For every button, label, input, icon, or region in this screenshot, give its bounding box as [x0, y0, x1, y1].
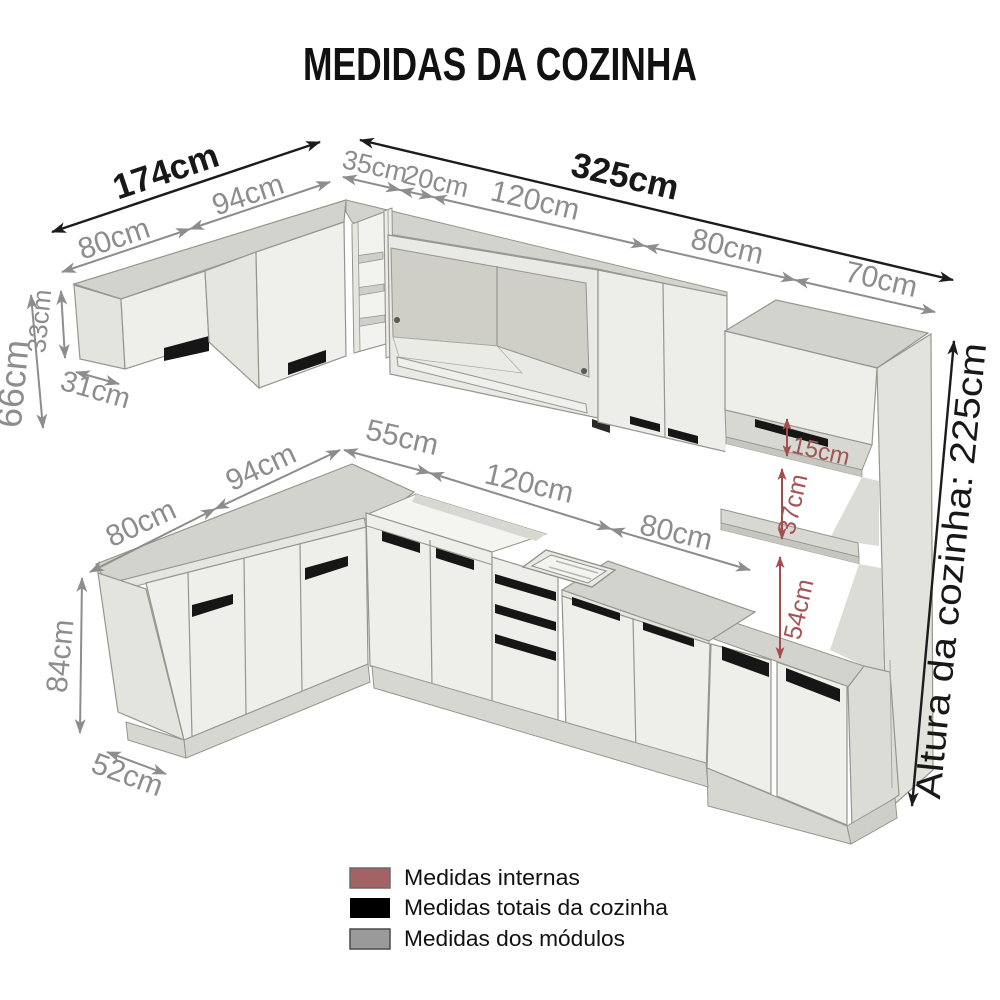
- svg-text:Medidas dos módulos: Medidas dos módulos: [404, 926, 625, 951]
- svg-text:MEDIDAS DA COZINHA: MEDIDAS DA COZINHA: [303, 38, 697, 90]
- svg-text:33cm: 33cm: [21, 288, 57, 354]
- svg-text:84cm: 84cm: [41, 618, 81, 694]
- svg-text:Medidas internas: Medidas internas: [404, 865, 580, 890]
- svg-text:Medidas totais da cozinha: Medidas totais da cozinha: [404, 895, 669, 920]
